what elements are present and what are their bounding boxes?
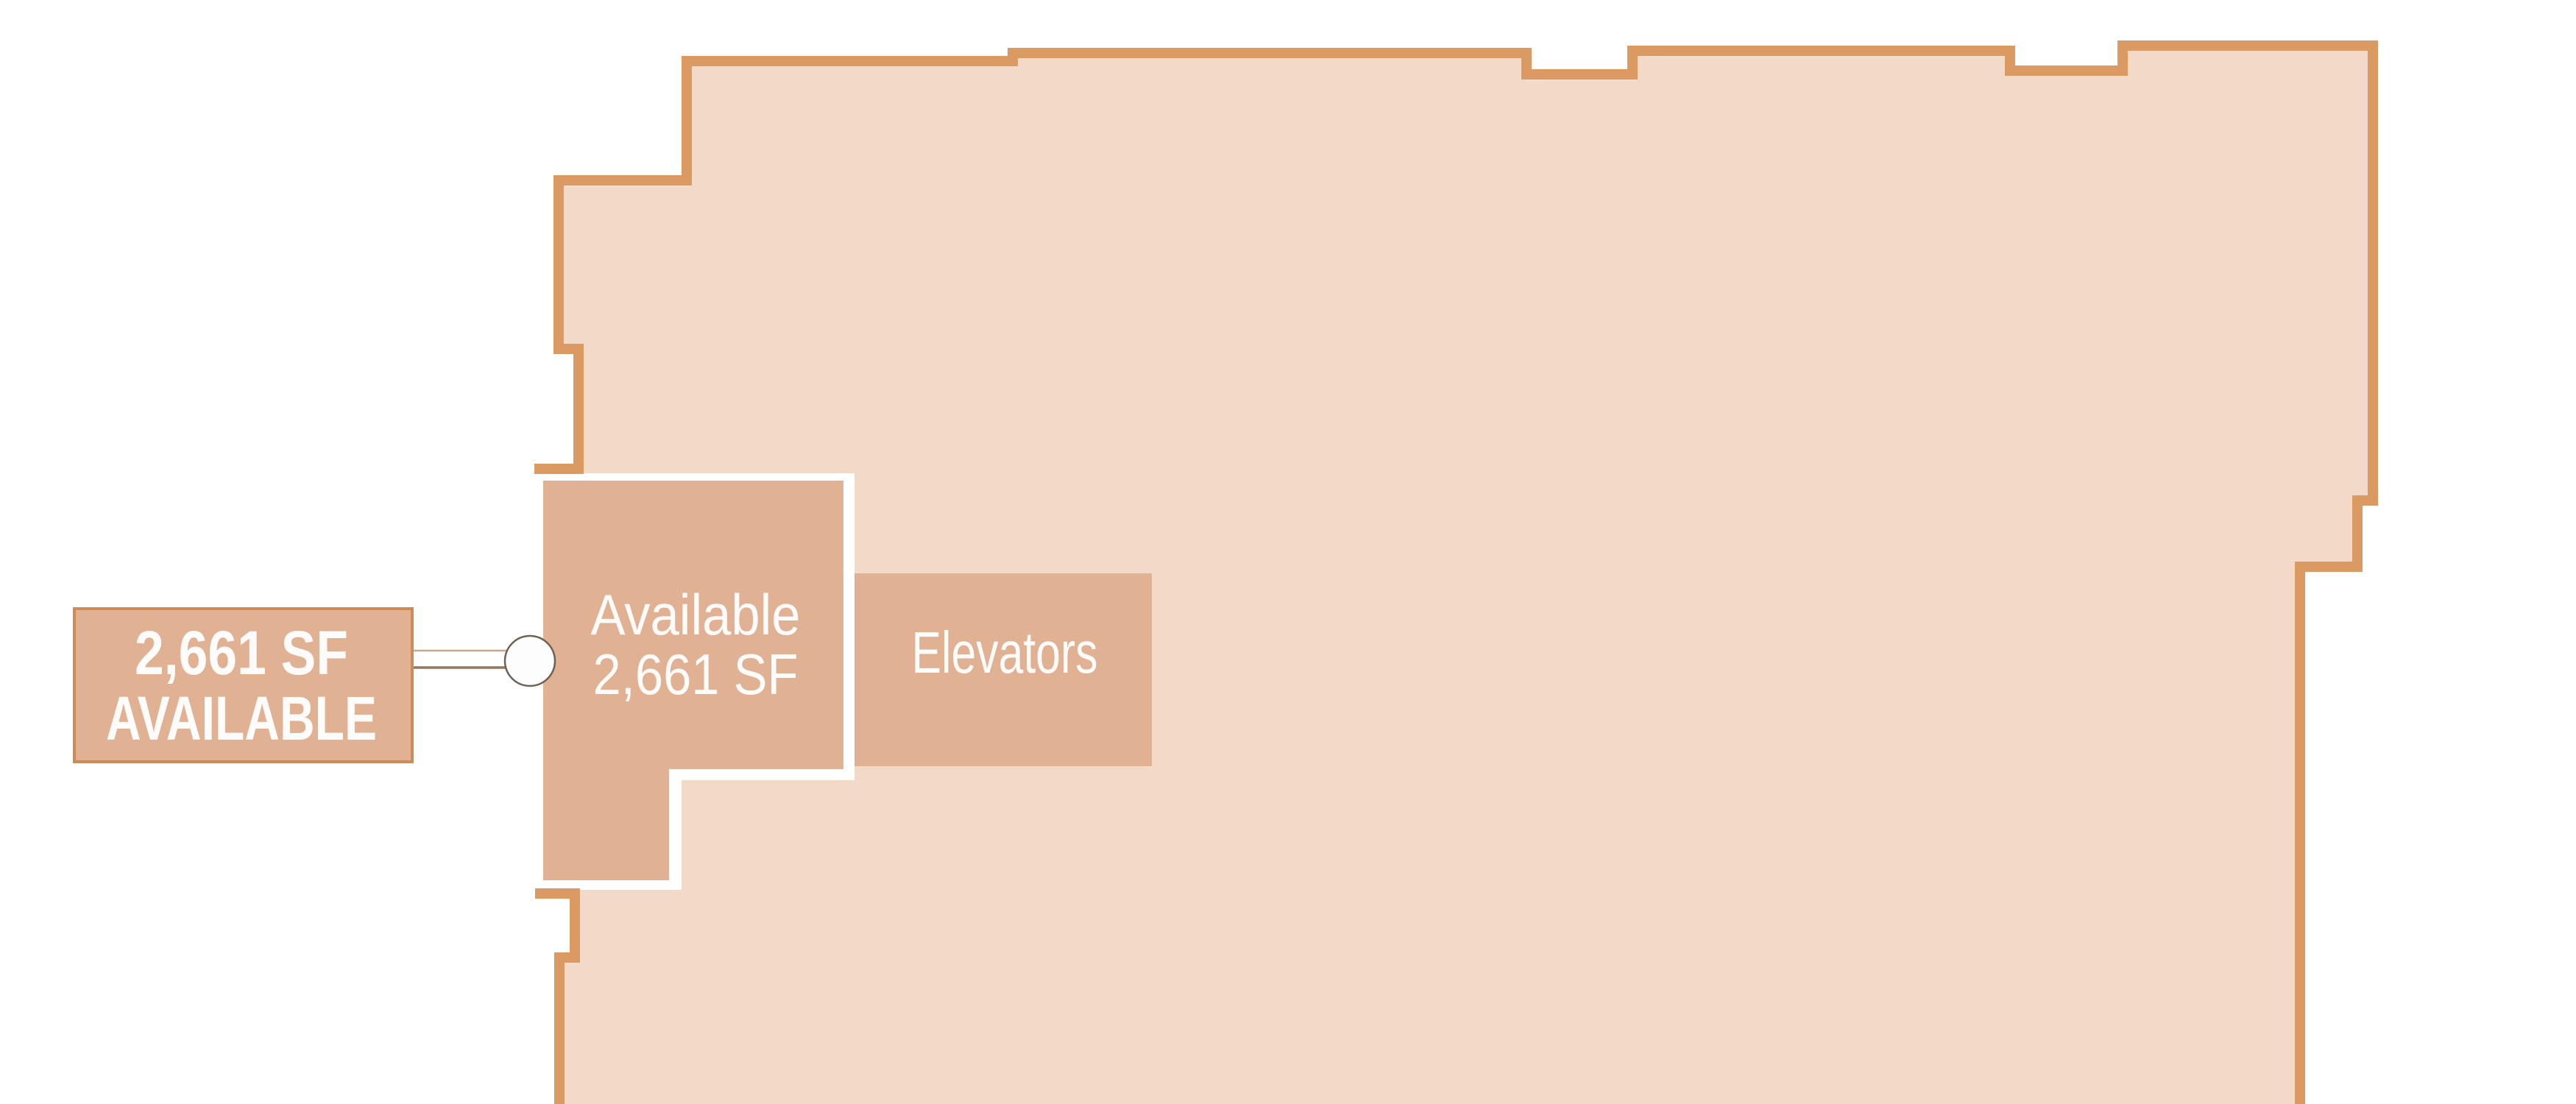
svg-text:Elevators: Elevators [912,620,1098,685]
svg-text:2,661 SF: 2,661 SF [593,642,799,707]
svg-text:Available: Available [591,582,801,647]
svg-text:2,661 SF: 2,661 SF [135,618,348,687]
svg-text:AVAILABLE: AVAILABLE [106,684,377,753]
